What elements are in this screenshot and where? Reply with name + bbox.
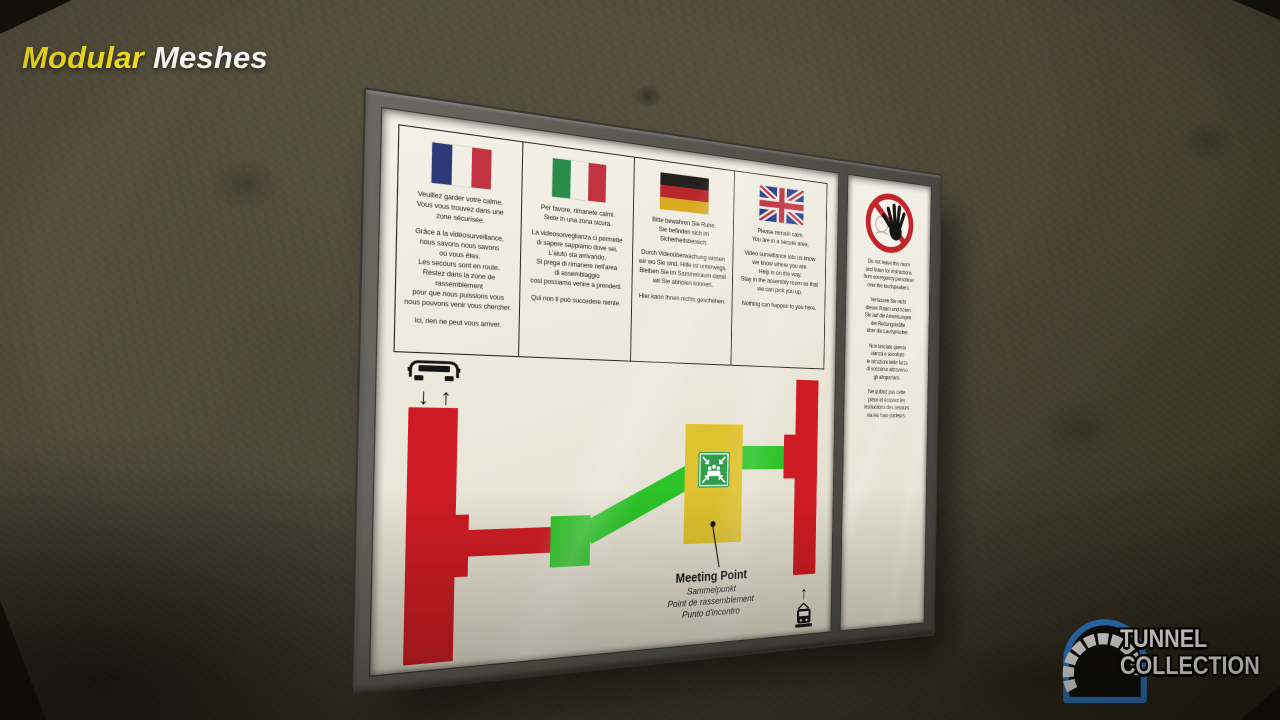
tunnel-scene: ModularMeshes Veuillez garder votre calm… xyxy=(0,0,1280,720)
instruction-strip: Do not leave this room and listen for in… xyxy=(840,174,932,632)
language-text: Per favore, rimanete calmi. Siete in una… xyxy=(530,203,624,316)
paragraph: Hier kann Ihnen nichts geschehen. xyxy=(635,292,730,308)
car-icon xyxy=(407,361,460,381)
paragraph: Qui non ti può succedere niente. xyxy=(530,294,622,310)
germany-flag-icon xyxy=(660,172,709,214)
paragraph: Ici, rien ne peut vous arriver. xyxy=(399,315,516,331)
paragraph: Durch Videoüberwachung wissen wir wo Sie… xyxy=(635,248,730,292)
evacuation-map: ↓ ↑ xyxy=(387,357,824,667)
paragraph-en: Do not leave this room and listen for in… xyxy=(852,257,924,294)
language-cell-english: Please remain calm. You are in a secure … xyxy=(732,171,827,368)
corner-shadow xyxy=(1232,0,1280,20)
paragraph: La videosorveglianza ci permette di sape… xyxy=(530,229,623,293)
watermark-word-yellow: Modular xyxy=(22,40,144,75)
paragraph: Bitte bewahren Sie Ruhe. Sie befinden si… xyxy=(636,214,731,251)
paragraph: Nothing can happen to you here. xyxy=(740,300,817,314)
france-flag-icon xyxy=(431,142,491,189)
watermark-word-white: Meshes xyxy=(153,40,268,75)
map-rail-tunnel xyxy=(793,380,819,575)
instruction-text: Do not leave this room and listen for in… xyxy=(850,257,924,421)
wall-blemish xyxy=(1180,120,1236,162)
language-text: Veuillez garder votre calme. Vous vous t… xyxy=(399,188,518,338)
corner-shadow xyxy=(0,0,72,34)
language-cell-german: Bitte bewahren Sie Ruhe. Sie befinden si… xyxy=(631,158,736,365)
language-instruction-table: Veuillez garder votre calme. Vous vous t… xyxy=(393,124,827,369)
arrow-up-rail-icon: ↑ xyxy=(800,583,808,604)
brand-badge: TUNNEL COLLECTION xyxy=(1056,604,1276,708)
notice-board-frame: Veuillez garder votre calme. Vous vous t… xyxy=(351,87,943,696)
paragraph: Please remain calm. You are in a secure … xyxy=(742,226,819,251)
paragraph: Video surveillance lets us know we know … xyxy=(741,250,819,300)
map-cross-passage xyxy=(455,527,553,557)
paragraph-fr: Ne quittez pas cette pièce et écoutez le… xyxy=(850,388,922,420)
italy-flag-icon xyxy=(552,158,606,202)
wall-blemish xyxy=(210,160,280,210)
language-text: Bitte bewahren Sie Ruhe. Sie befinden si… xyxy=(634,214,730,314)
meeting-point-title: Meeting Point xyxy=(676,567,748,586)
notice-board: Veuillez garder votre calme. Vous vous t… xyxy=(351,87,943,696)
paragraph: Grâce à la vidéosurveillance, nous savon… xyxy=(399,226,517,315)
paragraph: Per favore, rimanete calmi. Siete in una… xyxy=(532,203,624,232)
language-text: Please remain calm. You are in a secure … xyxy=(740,226,818,320)
paragraph-it: Non lasciate questa stanza e ascoltate l… xyxy=(851,342,923,384)
uk-flag-icon xyxy=(759,185,803,225)
corner-shadow xyxy=(0,600,46,720)
arrow-down-icon: ↓ xyxy=(418,385,430,410)
evacuation-poster: Veuillez garder votre calme. Vous vous t… xyxy=(369,107,839,677)
assembly-point-icon xyxy=(698,452,730,488)
language-cell-french: Veuillez garder votre calme. Vous vous t… xyxy=(395,125,523,356)
wall-blemish xyxy=(633,84,663,108)
brand-line-2: COLLECTION xyxy=(1120,653,1260,680)
tram-icon xyxy=(795,603,812,628)
map-rail-spur xyxy=(783,435,795,479)
paragraph: Veuillez garder votre calme. Vous vous t… xyxy=(401,188,518,230)
watermark-title: ModularMeshes xyxy=(22,40,268,76)
map-road-tunnel xyxy=(403,407,458,665)
wall-blemish xyxy=(1040,400,1120,460)
language-cell-italian: Per favore, rimanete calmi. Siete in una… xyxy=(519,142,635,360)
brand-badge-text: TUNNEL COLLECTION xyxy=(1120,626,1260,679)
paragraph-de: Verlassen Sie nicht diesen Raum und höre… xyxy=(852,295,924,338)
arrow-up-icon: ↑ xyxy=(440,386,452,410)
do-not-leave-icon xyxy=(865,190,914,255)
brand-line-1: TUNNEL xyxy=(1120,626,1260,653)
map-safe-route-diagonal xyxy=(582,466,694,545)
